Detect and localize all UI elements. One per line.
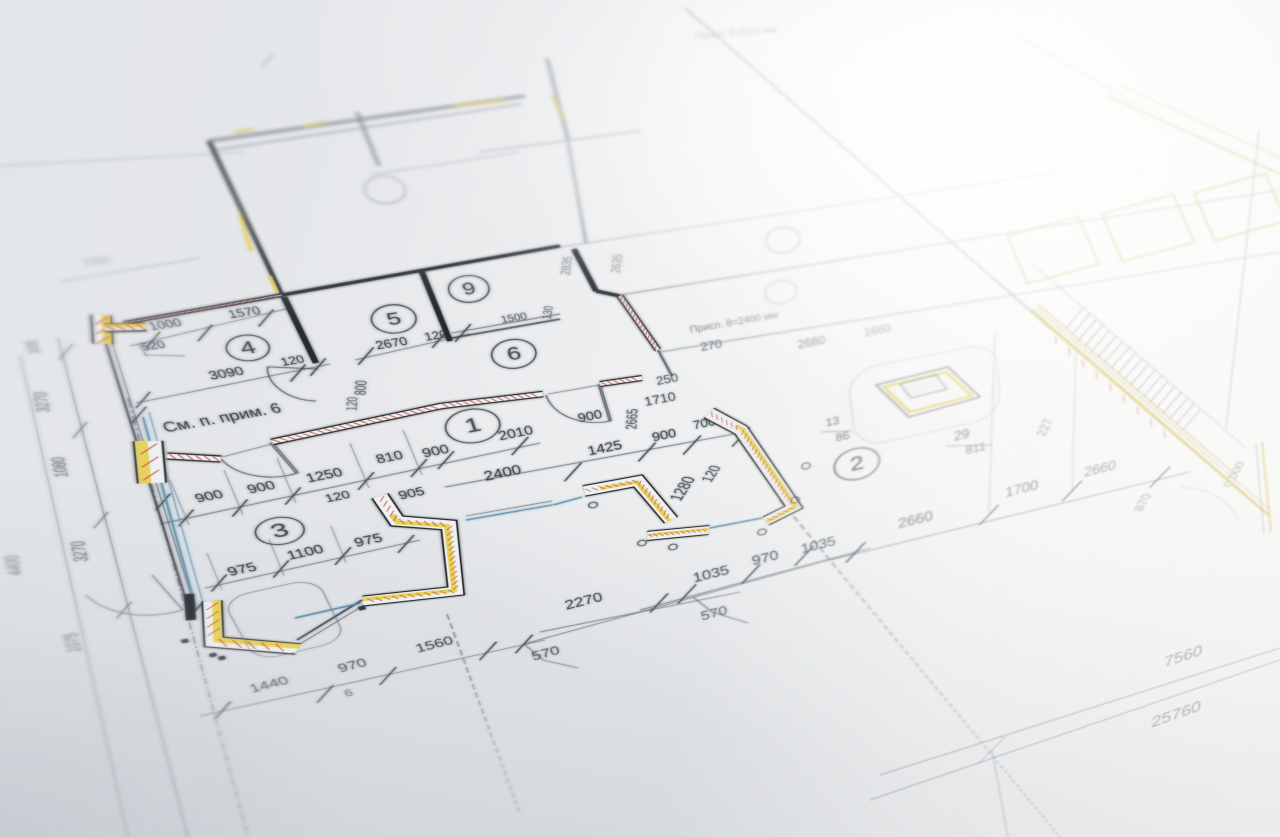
svg-text:2010: 2010 xyxy=(496,422,535,442)
svg-text:975: 975 xyxy=(224,560,259,579)
svg-text:29: 29 xyxy=(953,426,970,444)
svg-text:1570: 1570 xyxy=(226,304,263,321)
svg-text:25760: 25760 xyxy=(1151,697,1202,731)
svg-text:970: 970 xyxy=(750,548,779,569)
svg-text:1280: 1280 xyxy=(665,475,699,503)
svg-text:1: 1 xyxy=(461,414,484,437)
svg-text:1035: 1035 xyxy=(691,562,730,585)
svg-text:227: 227 xyxy=(1033,418,1056,437)
svg-text:900: 900 xyxy=(420,441,451,460)
svg-text:1710: 1710 xyxy=(643,389,677,408)
svg-text:9: 9 xyxy=(459,278,478,299)
svg-text:См. п. прим. 6: См. п. прим. 6 xyxy=(159,400,284,436)
svg-text:1250: 1250 xyxy=(303,465,344,485)
svg-text:810: 810 xyxy=(373,448,405,467)
svg-text:1075: 1075 xyxy=(60,632,86,653)
svg-text:1560: 1560 xyxy=(413,633,455,655)
svg-text:2270: 2270 xyxy=(563,589,605,612)
svg-text:2665: 2665 xyxy=(622,409,641,430)
svg-text:120: 120 xyxy=(697,464,724,484)
svg-text:2670: 2670 xyxy=(373,334,409,352)
svg-text:6: 6 xyxy=(342,687,355,700)
svg-text:2660: 2660 xyxy=(1084,457,1116,480)
svg-text:6: 6 xyxy=(504,343,524,364)
svg-text:900: 900 xyxy=(244,478,277,496)
svg-text:2660: 2660 xyxy=(897,508,933,532)
svg-text:120: 120 xyxy=(279,353,307,368)
svg-text:975: 975 xyxy=(352,531,385,550)
svg-text:120: 120 xyxy=(343,397,361,411)
svg-text:270: 270 xyxy=(699,337,723,353)
svg-text:811: 811 xyxy=(965,439,986,457)
svg-text:1660: 1660 xyxy=(863,321,891,339)
svg-text:2400: 2400 xyxy=(482,462,524,484)
svg-text:Присп. 8=2400 мм: Присп. 8=2400 мм xyxy=(689,309,779,335)
svg-text:900: 900 xyxy=(192,488,226,506)
svg-text:1500: 1500 xyxy=(499,310,528,325)
svg-text:1440: 1440 xyxy=(247,674,291,695)
svg-text:1700: 1700 xyxy=(1005,477,1039,500)
svg-text:1100: 1100 xyxy=(284,542,326,563)
svg-text:1035: 1035 xyxy=(800,533,837,556)
svg-text:105: 105 xyxy=(22,340,43,354)
svg-text:3: 3 xyxy=(267,519,293,542)
svg-text:905: 905 xyxy=(396,484,427,502)
svg-text:5: 5 xyxy=(384,308,405,329)
svg-text:4: 4 xyxy=(236,337,259,358)
svg-text:2835: 2835 xyxy=(558,256,576,276)
svg-text:970: 970 xyxy=(335,656,369,675)
svg-text:7560: 7560 xyxy=(1164,642,1203,671)
svg-text:800: 800 xyxy=(352,380,370,395)
svg-text:2635: 2635 xyxy=(608,253,626,273)
svg-text:13: 13 xyxy=(825,414,840,429)
svg-text:1560: 1560 xyxy=(80,254,113,268)
svg-text:2: 2 xyxy=(848,451,865,475)
svg-text:120: 120 xyxy=(323,488,353,505)
svg-text:250: 250 xyxy=(655,371,680,387)
svg-text:3090: 3090 xyxy=(206,364,246,383)
svg-text:3270: 3270 xyxy=(66,540,92,562)
svg-text:900: 900 xyxy=(650,426,677,444)
svg-text:3270: 3270 xyxy=(30,392,55,413)
svg-text:2680: 2680 xyxy=(796,333,826,351)
svg-text:870: 870 xyxy=(1130,493,1154,512)
svg-text:1080: 1080 xyxy=(48,457,73,478)
svg-text:4400: 4400 xyxy=(0,555,27,577)
